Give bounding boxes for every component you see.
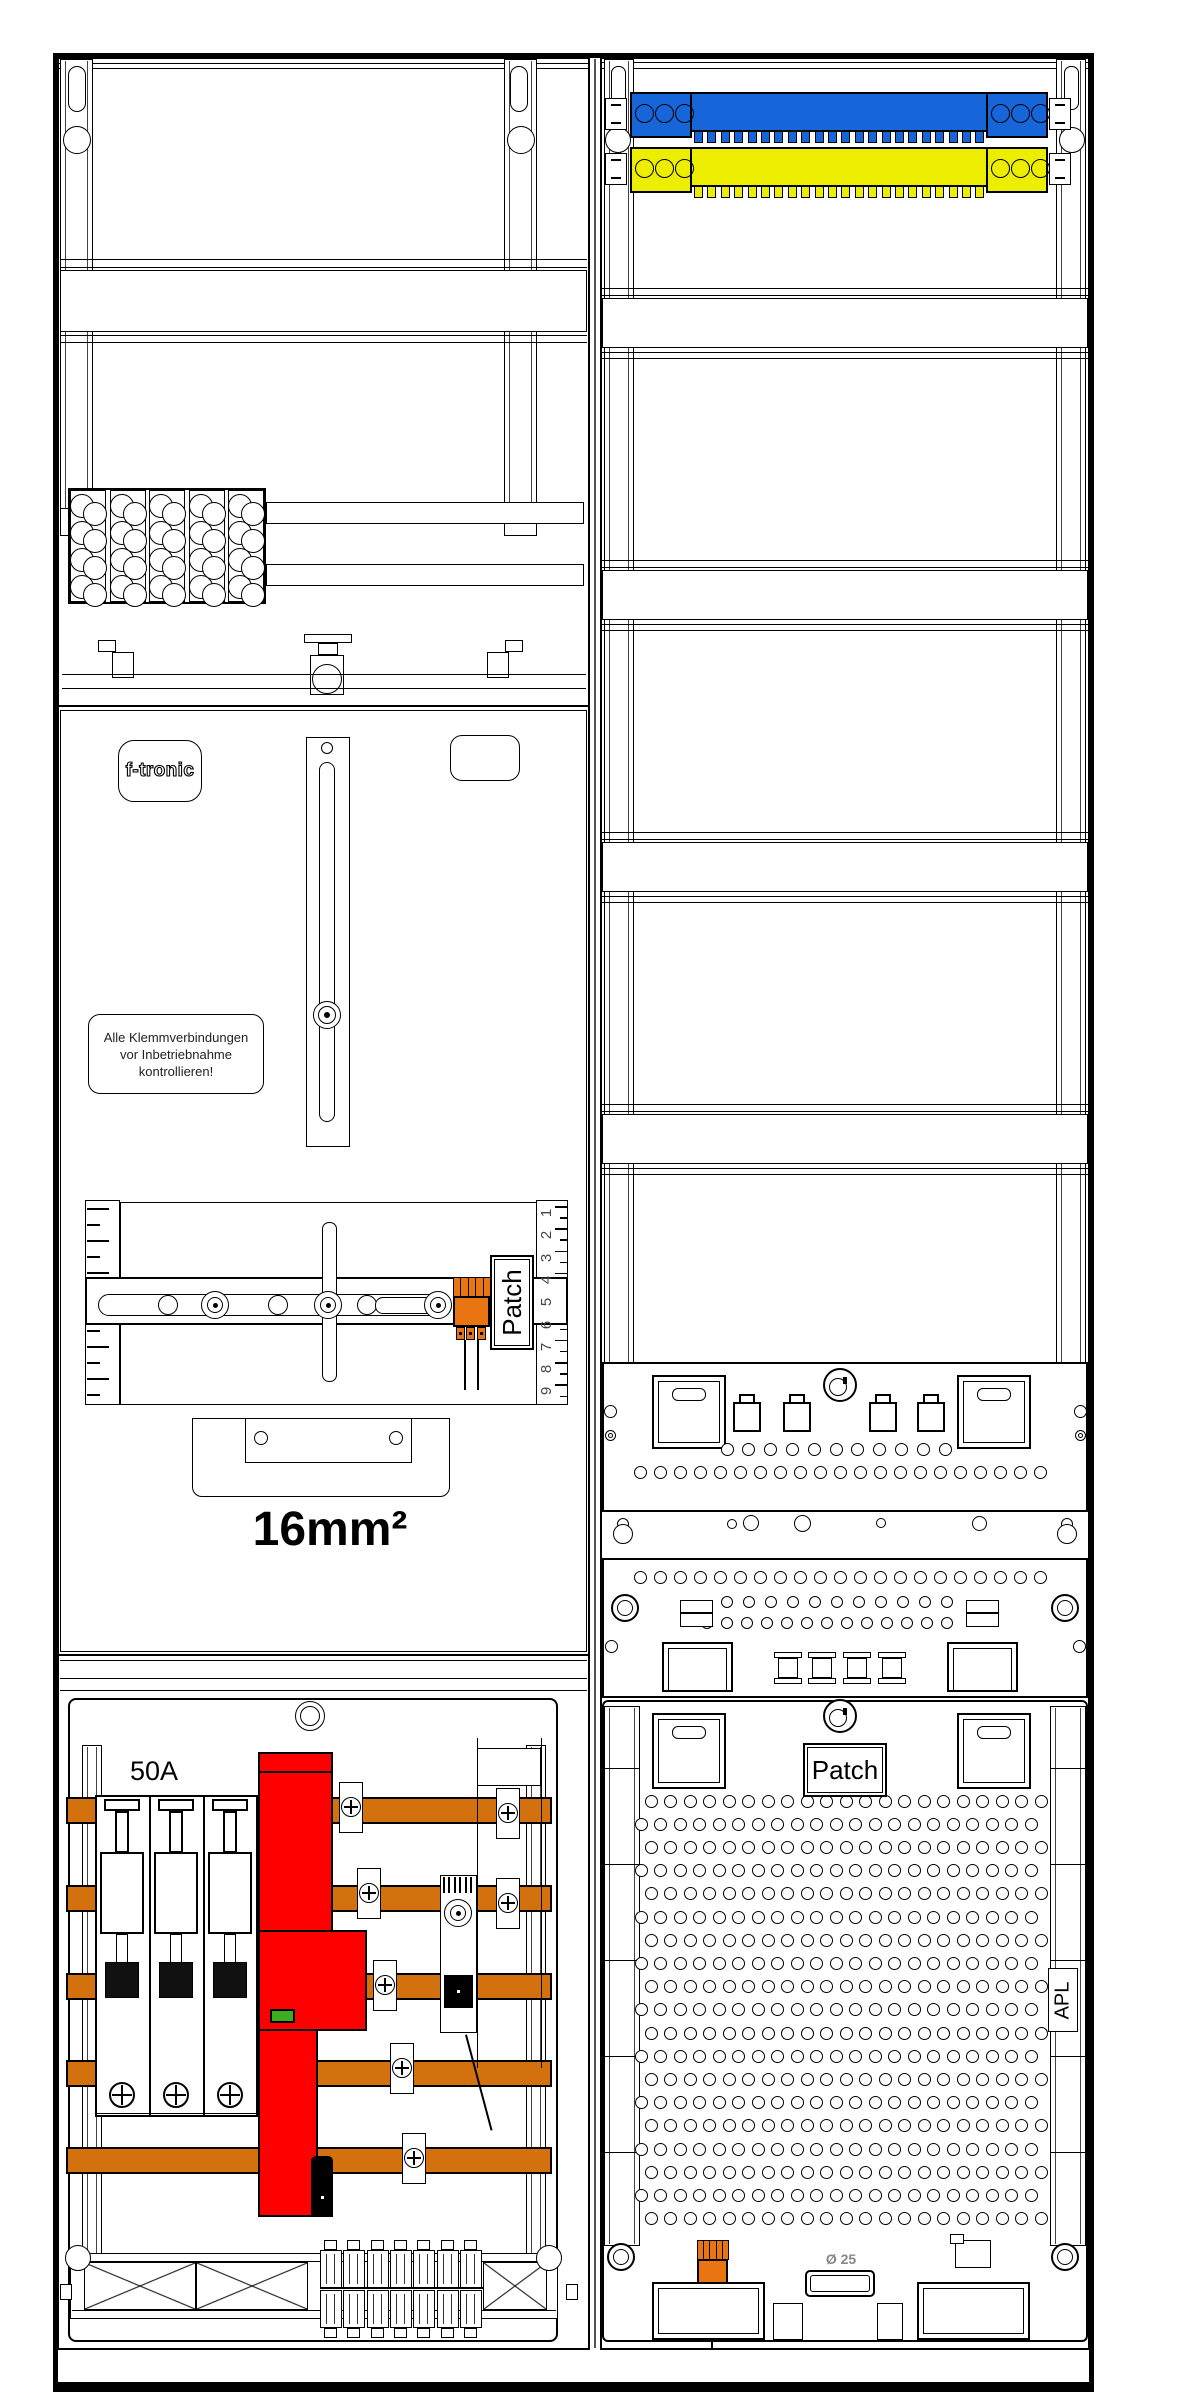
perforation-hole bbox=[664, 2212, 677, 2225]
perforation-hole bbox=[693, 1818, 706, 1831]
panel-hole bbox=[874, 1571, 887, 1584]
perforation-hole bbox=[674, 1864, 687, 1877]
panel-hole bbox=[781, 1617, 793, 1629]
perforation-hole bbox=[849, 2189, 862, 2202]
perforation-hole bbox=[830, 2189, 843, 2202]
pe-busbar-tooth bbox=[707, 186, 716, 198]
perforation-hole bbox=[801, 2119, 814, 2132]
perforation-hole bbox=[801, 1841, 814, 1854]
apl-bracket-step bbox=[950, 2234, 964, 2244]
perforation-hole bbox=[713, 2003, 726, 2016]
perforation-hole bbox=[898, 2027, 911, 2040]
apl-rail-divider bbox=[1050, 2056, 1086, 2057]
perforation-hole bbox=[771, 1957, 784, 1970]
perforation-hole bbox=[723, 2166, 736, 2179]
panel2-opening-left-inner bbox=[668, 1648, 727, 1692]
perforation-hole bbox=[957, 2212, 970, 2225]
busbar-clip-line bbox=[611, 159, 621, 161]
neutral-busbar-tooth bbox=[788, 131, 797, 143]
perforation-hole bbox=[840, 1980, 853, 1993]
busbar-clip-line bbox=[1055, 122, 1065, 124]
perforation-hole bbox=[888, 2096, 901, 2109]
strip-tab bbox=[464, 2328, 477, 2338]
perforation-hole bbox=[693, 1957, 706, 1970]
breaker-rating-label: 50A bbox=[130, 1756, 220, 1786]
apl-label-text: APL bbox=[1052, 1981, 1075, 2019]
perforation-hole bbox=[859, 1841, 872, 1854]
perforation-hole bbox=[927, 2096, 940, 2109]
panel-edge-hole bbox=[608, 1433, 613, 1438]
apl-rail-divider bbox=[1050, 2152, 1086, 2153]
perforation-hole bbox=[869, 1957, 882, 1970]
fuse-grip-body bbox=[154, 1852, 198, 1934]
crossbar-screw-dot bbox=[213, 1303, 218, 1308]
strip-line bbox=[419, 2294, 420, 2324]
panel-hole bbox=[765, 1596, 777, 1608]
sls-switch-line bbox=[258, 1771, 333, 1773]
perforation-hole bbox=[996, 2212, 1009, 2225]
perforation-hole bbox=[713, 1911, 726, 1924]
cable-grommet-bot bbox=[843, 1678, 871, 1684]
perforation-hole bbox=[664, 1795, 677, 1808]
rail-slot bbox=[68, 66, 86, 112]
perforation-hole bbox=[684, 2212, 697, 2225]
strip-line bbox=[427, 2294, 428, 2324]
strip-line bbox=[326, 2294, 327, 2324]
strip-tab bbox=[347, 2240, 360, 2250]
perforation-hole bbox=[762, 2212, 775, 2225]
apl-rail-left-inner-l bbox=[609, 1708, 610, 2244]
perforation-hole bbox=[1035, 1841, 1048, 1854]
panel-hole bbox=[814, 1466, 827, 1479]
warning-label: Alle Klemmverbindungen vor Inbetriebnahm… bbox=[88, 1014, 264, 1094]
perforation-hole bbox=[762, 1980, 775, 1993]
perforation-hole bbox=[654, 2050, 667, 2063]
perforation-hole bbox=[771, 1911, 784, 1924]
fuse-grip-stem bbox=[116, 1934, 128, 1963]
busbar-clamp-screw-cross-v bbox=[350, 1800, 352, 1814]
sls-plug bbox=[311, 2156, 333, 2217]
pe-busbar-tooth bbox=[788, 186, 797, 198]
pe-busbar-tooth bbox=[761, 186, 770, 198]
perforation-hole bbox=[1035, 2212, 1048, 2225]
strip-line bbox=[396, 2254, 397, 2284]
busbar-clamp-screw-cross-v bbox=[384, 1978, 386, 1992]
rj45-jack bbox=[783, 1402, 811, 1432]
perforation-hole bbox=[801, 2027, 814, 2040]
perforation-hole bbox=[801, 1980, 814, 1993]
perforation-hole bbox=[771, 2050, 784, 2063]
apl-rail-divider bbox=[1050, 1960, 1086, 1961]
scale-tick bbox=[560, 1373, 567, 1375]
strip-line bbox=[373, 2254, 374, 2284]
meter-connector-pin-dot bbox=[459, 1332, 462, 1335]
strip-tab bbox=[464, 2240, 477, 2250]
top-edge-line bbox=[602, 62, 1088, 63]
perforation-hole bbox=[635, 2050, 648, 2063]
perforation-hole bbox=[996, 1980, 1009, 1993]
perforation-hole bbox=[840, 1934, 853, 1947]
rail-hole bbox=[1059, 127, 1085, 153]
perforation-hole bbox=[752, 1818, 765, 1831]
perforation-hole bbox=[879, 1980, 892, 1993]
perforation-hole bbox=[771, 2189, 784, 2202]
meter-scale-number: 3 bbox=[536, 1248, 556, 1268]
pedestal-hole bbox=[312, 664, 342, 694]
rj45-jack bbox=[869, 1402, 897, 1432]
din-rail-right-3-body bbox=[602, 842, 1088, 892]
base-line bbox=[62, 688, 586, 689]
terminal-strip-module bbox=[343, 2290, 365, 2328]
perforation-hole bbox=[791, 2050, 804, 2063]
apl-cable-entry bbox=[773, 2303, 803, 2340]
pe-busbar-tooth bbox=[815, 186, 824, 198]
perforation-hole bbox=[879, 2073, 892, 2086]
panel-hole bbox=[881, 1617, 893, 1629]
perforation-hole bbox=[986, 2143, 999, 2156]
din-rail-right-2-l4 bbox=[602, 630, 1088, 631]
perforation-hole bbox=[957, 1887, 970, 1900]
perforation-hole bbox=[713, 1957, 726, 1970]
meter-connector-pin-dot bbox=[480, 1332, 483, 1335]
panel-hole bbox=[741, 1617, 753, 1629]
perforation-hole bbox=[703, 1841, 716, 1854]
perforation-hole bbox=[781, 2073, 794, 2086]
fuse-grip-body bbox=[100, 1852, 144, 1934]
perforation-hole bbox=[918, 2027, 931, 2040]
pe-busbar-tooth bbox=[882, 186, 891, 198]
panel-hole bbox=[941, 1596, 953, 1608]
panel-hole bbox=[794, 1466, 807, 1479]
perforation-hole bbox=[771, 1818, 784, 1831]
din-rail-right-2-l3 bbox=[602, 624, 1088, 625]
strip-line bbox=[404, 2254, 405, 2284]
perforation-hole bbox=[986, 2096, 999, 2109]
panel-hole bbox=[721, 1596, 733, 1608]
perforation-hole bbox=[937, 2166, 950, 2179]
neutral-busbar-tooth bbox=[828, 131, 837, 143]
pe-busbar-tooth bbox=[721, 186, 730, 198]
perforation-hole bbox=[957, 1980, 970, 1993]
perforation-hole bbox=[879, 2119, 892, 2132]
perforation-hole bbox=[791, 1864, 804, 1877]
apl-label: APL bbox=[1048, 1968, 1078, 2032]
perforation-hole bbox=[693, 1911, 706, 1924]
perforation-hole bbox=[966, 1864, 979, 1877]
breaker-contact-pad bbox=[105, 1962, 139, 1998]
patch-label-left: Patch bbox=[490, 1255, 534, 1350]
truss-line bbox=[72, 2310, 556, 2311]
din-rail-right-1-l1 bbox=[602, 288, 1088, 289]
strip-tab bbox=[347, 2328, 360, 2338]
perforation-hole bbox=[879, 1887, 892, 1900]
strip-line bbox=[451, 2294, 452, 2324]
panel-hole bbox=[934, 1571, 947, 1584]
perforation-hole bbox=[947, 2189, 960, 2202]
perforation-hole bbox=[684, 2166, 697, 2179]
perforation-hole bbox=[723, 1795, 736, 1808]
perforation-hole bbox=[859, 2166, 872, 2179]
scale-tick bbox=[555, 1206, 567, 1208]
perforation-hole bbox=[840, 2073, 853, 2086]
terminal-strip-module bbox=[390, 2250, 412, 2288]
sls-switch-lower bbox=[258, 2029, 318, 2217]
perforation-hole bbox=[791, 1911, 804, 1924]
panel-hole bbox=[786, 1443, 799, 1456]
dist-top-line bbox=[60, 1678, 587, 1679]
perforation-hole bbox=[781, 2212, 794, 2225]
fuse-grip-body bbox=[208, 1852, 252, 1934]
pe-busbar-tooth bbox=[895, 186, 904, 198]
neutral-busbar-tooth bbox=[882, 131, 891, 143]
din-line bbox=[60, 267, 587, 268]
perforation-hole bbox=[645, 2119, 658, 2132]
terminal-strip-module bbox=[367, 2290, 389, 2328]
perforation-hole bbox=[976, 2073, 989, 2086]
perforation-hole bbox=[869, 1864, 882, 1877]
terminal-strip-module bbox=[413, 2290, 435, 2328]
din-rail-right-1-l2 bbox=[602, 295, 1088, 296]
perforation-hole bbox=[693, 1864, 706, 1877]
panel-hole bbox=[794, 1571, 807, 1584]
perforation-hole bbox=[713, 2143, 726, 2156]
label-plate-blank bbox=[450, 735, 520, 781]
perforation-hole bbox=[898, 1934, 911, 1947]
panel-hole bbox=[939, 1443, 952, 1456]
neutral-busbar-tooth bbox=[935, 131, 944, 143]
perforation-hole bbox=[1015, 1980, 1028, 1993]
perforation-hole bbox=[752, 2003, 765, 2016]
scale-tick bbox=[560, 1351, 567, 1353]
perforation-hole bbox=[693, 2143, 706, 2156]
cable-grommet-waist bbox=[882, 1658, 902, 1678]
perforation-hole bbox=[830, 1818, 843, 1831]
perforation-hole bbox=[781, 2166, 794, 2179]
perforation-hole bbox=[947, 1818, 960, 1831]
truss-clip bbox=[60, 2284, 72, 2300]
perforation-hole bbox=[742, 1980, 755, 1993]
busbar-clip-line bbox=[1055, 159, 1065, 161]
perforation-hole bbox=[849, 1864, 862, 1877]
panel-hole bbox=[821, 1617, 833, 1629]
perforation-hole bbox=[723, 2073, 736, 2086]
perforation-hole bbox=[879, 2212, 892, 2225]
din-rail-right-3-l4 bbox=[602, 902, 1088, 903]
panel-hole bbox=[974, 1571, 987, 1584]
dist-top-hole bbox=[300, 1706, 320, 1726]
perforation-hole bbox=[664, 2166, 677, 2179]
truss-clip bbox=[566, 2284, 578, 2300]
rj45-jack bbox=[733, 1402, 761, 1432]
panel-hole bbox=[875, 1596, 887, 1608]
perforation-hole bbox=[810, 2096, 823, 2109]
busbar-clip-line bbox=[611, 177, 621, 179]
perforation-hole bbox=[849, 2096, 862, 2109]
panel-edge-hole bbox=[1078, 1433, 1083, 1438]
ruler-tick bbox=[87, 1362, 100, 1364]
perforation-hole bbox=[986, 1818, 999, 1831]
perforation-hole bbox=[879, 1841, 892, 1854]
neutral-busbar-tooth bbox=[694, 131, 703, 143]
panel-hole bbox=[854, 1466, 867, 1479]
ruler-tick bbox=[87, 1378, 109, 1380]
perforation-hole bbox=[762, 1934, 775, 1947]
gap-hole bbox=[876, 1518, 886, 1528]
strip-tab bbox=[371, 2328, 384, 2338]
perforation-hole bbox=[703, 2027, 716, 2040]
perforation-hole bbox=[937, 1795, 950, 1808]
perforation-hole bbox=[840, 2027, 853, 2040]
perforation-hole bbox=[820, 1934, 833, 1947]
scale-tick bbox=[555, 1384, 567, 1386]
apl-rail-divider bbox=[604, 1864, 640, 1865]
perforation-hole bbox=[1005, 1818, 1018, 1831]
perforation-hole bbox=[752, 1957, 765, 1970]
perforation-hole bbox=[908, 2189, 921, 2202]
panel-hole bbox=[841, 1617, 853, 1629]
perforation-hole bbox=[684, 1980, 697, 1993]
perforation-hole bbox=[966, 1957, 979, 1970]
perforation-hole bbox=[996, 1887, 1009, 1900]
neutral-busbar-tooth bbox=[707, 131, 716, 143]
perforation-hole bbox=[1005, 1957, 1018, 1970]
device-rib bbox=[465, 1877, 467, 1893]
perforation-hole bbox=[810, 1864, 823, 1877]
perforation-hole bbox=[898, 2212, 911, 2225]
fuse-grip-top bbox=[158, 1799, 194, 1811]
perforation-hole bbox=[1005, 2189, 1018, 2202]
perforation-hole bbox=[654, 1818, 667, 1831]
neutral-busbar-tooth bbox=[908, 131, 917, 143]
perforation-hole bbox=[869, 1818, 882, 1831]
panel-hole bbox=[1034, 1466, 1047, 1479]
fuse-grip-neck bbox=[223, 1811, 237, 1853]
strip-line bbox=[443, 2254, 444, 2284]
device-rib bbox=[454, 1877, 456, 1893]
neutral-busbar-cap-hole bbox=[635, 104, 654, 123]
strip-line bbox=[474, 2254, 475, 2284]
perforation-hole bbox=[674, 2143, 687, 2156]
strip-line bbox=[357, 2254, 358, 2284]
perforation-hole bbox=[684, 2119, 697, 2132]
strip-line bbox=[349, 2294, 350, 2324]
terminal-strip-module bbox=[413, 2250, 435, 2288]
panel-hole bbox=[941, 1617, 953, 1629]
neutral-busbar-tooth bbox=[895, 131, 904, 143]
base-line bbox=[62, 674, 586, 675]
perforation-hole bbox=[1005, 2050, 1018, 2063]
brand-logo: f-tronic bbox=[118, 740, 202, 802]
perforation-hole bbox=[869, 2050, 882, 2063]
din-rail-right-1-body bbox=[602, 298, 1088, 348]
perforation-hole bbox=[645, 2212, 658, 2225]
perforation-hole bbox=[927, 1911, 940, 1924]
perforation-hole bbox=[976, 2027, 989, 2040]
strip-line bbox=[334, 2254, 335, 2284]
perforation-hole bbox=[723, 1934, 736, 1947]
sls-indicator bbox=[270, 2009, 295, 2023]
panel-hole bbox=[734, 1466, 747, 1479]
perforation-hole bbox=[693, 2050, 706, 2063]
perforation-hole bbox=[976, 2212, 989, 2225]
neutral-busbar-tooth bbox=[721, 131, 730, 143]
ruler-tick bbox=[87, 1272, 109, 1274]
perforation-hole bbox=[1005, 1911, 1018, 1924]
din-rail-right-4-l4 bbox=[602, 1174, 1088, 1175]
perforation-hole bbox=[635, 1864, 648, 1877]
perforation-hole bbox=[1015, 2073, 1028, 2086]
panel-hole bbox=[897, 1596, 909, 1608]
perforation-hole bbox=[1015, 2166, 1028, 2179]
apl-cable-entry bbox=[877, 2303, 903, 2340]
strip-line bbox=[427, 2254, 428, 2284]
perforation-hole bbox=[840, 2166, 853, 2179]
terminal-hole bbox=[83, 583, 107, 607]
device-frame-line bbox=[541, 1738, 542, 2068]
perforation-hole bbox=[791, 1957, 804, 1970]
fuse-grip-stem bbox=[224, 1934, 236, 1963]
perforation-hole bbox=[635, 1818, 648, 1831]
perforation-hole bbox=[966, 2143, 979, 2156]
perforation-hole bbox=[810, 2050, 823, 2063]
perforation-hole bbox=[703, 1795, 716, 1808]
neutral-busbar-cap-hole bbox=[675, 104, 694, 123]
panel-hole bbox=[694, 1466, 707, 1479]
pe-busbar-cap-hole bbox=[675, 159, 694, 178]
cable-grommet-waist bbox=[812, 1658, 832, 1678]
perforation-hole bbox=[937, 1980, 950, 1993]
busbar-clamp-screw-cross-v bbox=[401, 2061, 403, 2075]
perforation-hole bbox=[703, 1934, 716, 1947]
perforation-hole bbox=[830, 2003, 843, 2016]
strip-line bbox=[381, 2254, 382, 2284]
device-screw-dot bbox=[456, 1911, 461, 1916]
perforation-hole bbox=[840, 2119, 853, 2132]
meter-scale-number: 8 bbox=[536, 1359, 556, 1379]
perforation-hole bbox=[801, 1887, 814, 1900]
perforation-hole bbox=[976, 1841, 989, 1854]
perforation-hole bbox=[674, 1818, 687, 1831]
busbar-clip bbox=[605, 153, 627, 185]
fuse-grip-top bbox=[104, 1799, 140, 1811]
meter-scale-number: 7 bbox=[536, 1337, 556, 1357]
strip-line bbox=[381, 2294, 382, 2324]
perforation-hole bbox=[830, 1864, 843, 1877]
perforation-hole bbox=[674, 2050, 687, 2063]
perforation-hole bbox=[1025, 2189, 1038, 2202]
perforation-hole bbox=[996, 1841, 1009, 1854]
perforation-hole bbox=[762, 2073, 775, 2086]
perforation-hole bbox=[996, 1795, 1009, 1808]
panel1-opening-left-slot bbox=[672, 1388, 706, 1401]
perforation-hole bbox=[771, 1864, 784, 1877]
pe-busbar-tooth bbox=[962, 186, 971, 198]
panel-hole bbox=[764, 1443, 777, 1456]
grommet-diameter-label: Ø 25 bbox=[810, 2250, 872, 2268]
panel-hole bbox=[917, 1443, 930, 1456]
pedestal-stem bbox=[318, 643, 338, 655]
perforation-hole bbox=[840, 1841, 853, 1854]
din-rail-right-2-l2 bbox=[602, 567, 1088, 568]
busbar-clip-line bbox=[1055, 177, 1065, 179]
pe-busbar-cap-hole bbox=[635, 159, 654, 178]
strip-line bbox=[443, 2294, 444, 2324]
terminal-hole bbox=[123, 583, 147, 607]
perforation-hole bbox=[927, 2143, 940, 2156]
neutral-busbar-tooth bbox=[774, 131, 783, 143]
perforation-hole bbox=[986, 1957, 999, 1970]
perforation-hole bbox=[927, 1818, 940, 1831]
